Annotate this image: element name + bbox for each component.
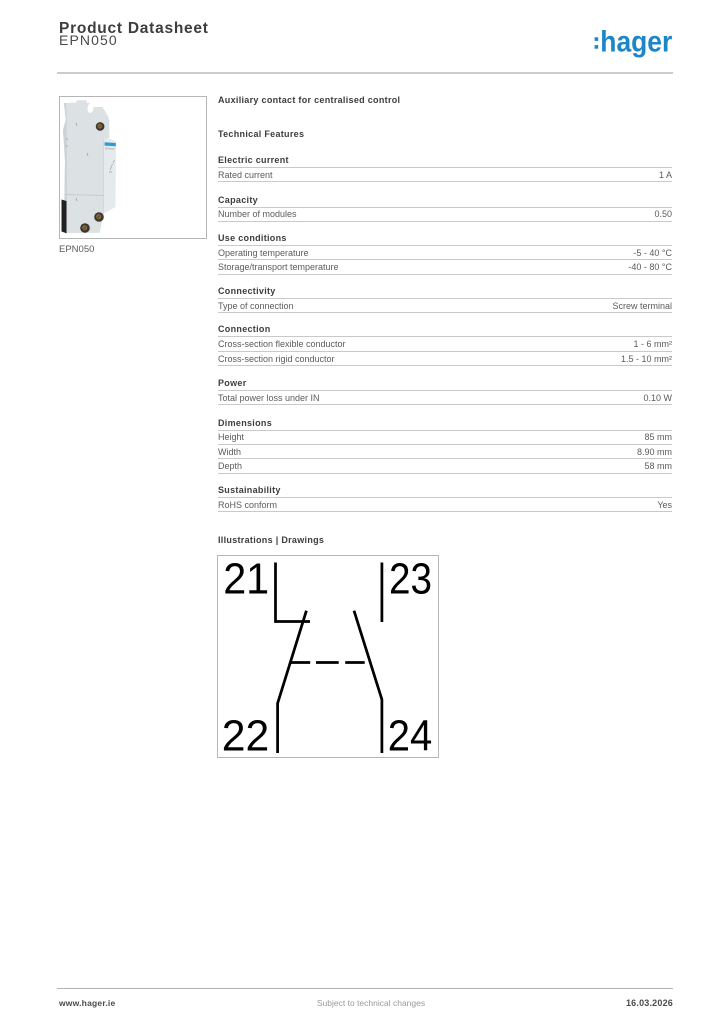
- svg-text:hager: hager: [600, 26, 672, 59]
- svg-text:22: 22: [222, 712, 269, 758]
- svg-text:23: 23: [389, 556, 432, 604]
- svg-text:21: 21: [223, 556, 269, 604]
- svg-text:24: 24: [388, 712, 433, 758]
